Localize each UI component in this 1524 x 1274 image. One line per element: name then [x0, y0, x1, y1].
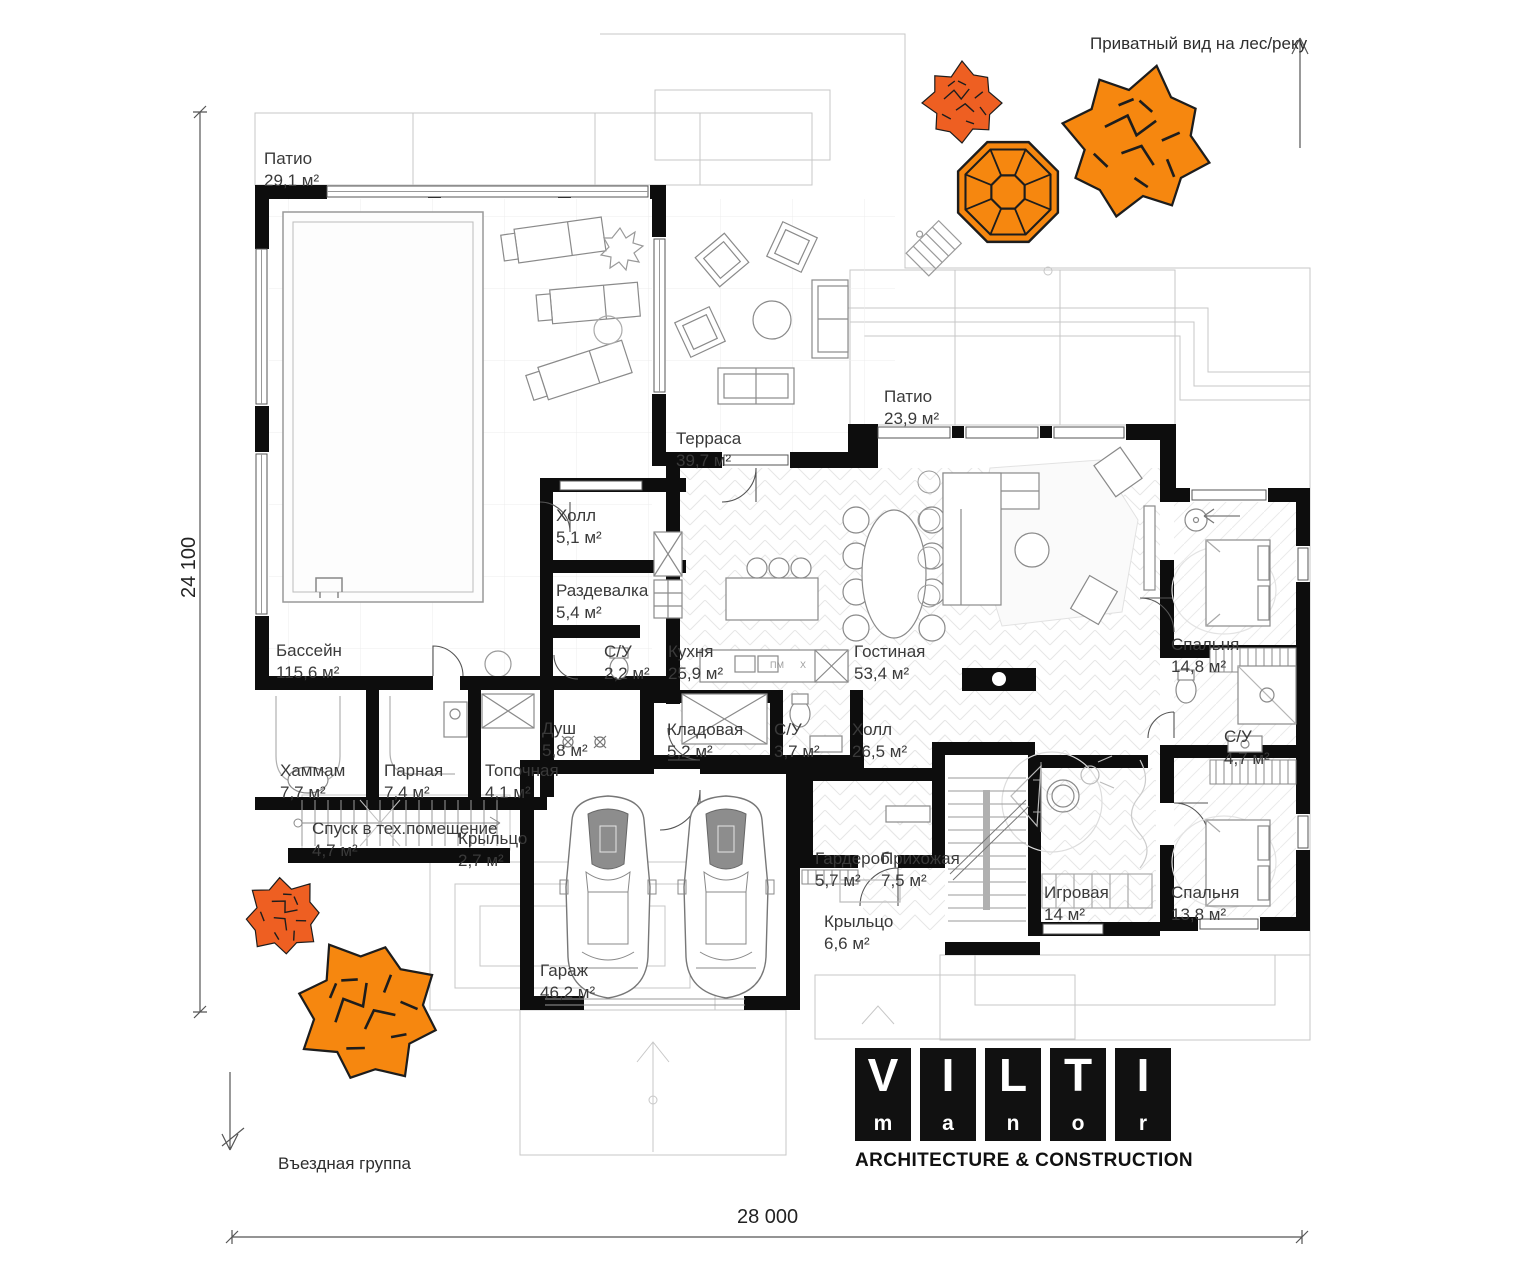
- room-label-porch-2: Крыльцо6,6 м²: [824, 911, 893, 956]
- logo-tile: Ir: [1115, 1048, 1171, 1141]
- logo-tagline: ARCHITECTURE & CONSTRUCTION: [855, 1150, 1173, 1172]
- room-label-entry-hall: Прихожая7,5 м²: [881, 848, 960, 893]
- room-label-changing: Раздевалка5,4 м²: [556, 580, 648, 625]
- entry-note: Въездная группа: [278, 1154, 411, 1174]
- room-label-playroom: Игровая14 м²: [1044, 882, 1109, 927]
- room-label-porch-1: Крыльцо2,7 м²: [458, 828, 527, 873]
- gazebo-steps-icon: [901, 216, 961, 276]
- dim-line-horizontal: [226, 1230, 1308, 1244]
- stairs-main: [948, 778, 1029, 921]
- room-label-hall-big: Холл26,5 м²: [852, 719, 907, 764]
- room-label-wc-2: С/У3,7 м²: [774, 719, 820, 764]
- room-label-bedroom-2: Спальня13,8 м²: [1171, 882, 1239, 927]
- room-label-boiler: Топочная4,1 м²: [485, 760, 559, 805]
- logo-tile: Ia: [920, 1048, 976, 1141]
- dim-width: 28 000: [737, 1206, 798, 1229]
- room-label-hall-small: Холл5,1 м²: [556, 505, 602, 550]
- appliance-label-hob: X: [800, 660, 806, 670]
- room-label-hammam: Хаммам7,7 м²: [280, 760, 345, 805]
- room-label-kitchen: Кухня25,9 м²: [668, 641, 723, 686]
- room-label-patio-1: Патио29,1 м²: [264, 148, 319, 193]
- room-label-wardrobe: Гардероб5,7 м²: [815, 848, 890, 893]
- logo-tiles: Vm Ia Ln To Ir: [855, 1048, 1173, 1141]
- logo-tile: To: [1050, 1048, 1106, 1141]
- room-label-steam: Парная7,4 м²: [384, 760, 443, 805]
- room-label-terrace: Терраса39,7 м²: [676, 428, 741, 473]
- gazebo-icon: [958, 142, 1058, 242]
- appliance-label-dishwasher: ПМ: [770, 660, 784, 670]
- company-logo: Vm Ia Ln To Ir ARCHITECTURE & CONSTRUCTI…: [855, 1048, 1173, 1172]
- entry-arrow-icon: [222, 1072, 244, 1150]
- room-label-storage: Кладовая5,2 м²: [667, 719, 743, 764]
- tree-icon: [922, 61, 1002, 143]
- dim-height: 24 100: [178, 537, 201, 598]
- floor-plan-canvas: Патио29,1 м² Терраса39,7 м² Патио23,9 м²…: [0, 0, 1524, 1274]
- fireplace-icon: [992, 672, 1006, 686]
- pool: [283, 212, 483, 602]
- logo-tile: Vm: [855, 1048, 911, 1141]
- room-label-wc-1: С/У2,2 м²: [604, 641, 650, 686]
- room-label-shower: Душ5,8 м²: [542, 718, 588, 763]
- room-label-patio-2: Патио23,9 м²: [884, 386, 939, 431]
- north-arrow-icon: [1292, 38, 1308, 148]
- floor-plan-drawing: [0, 0, 1524, 1274]
- tree-icon: [1043, 46, 1230, 236]
- room-label-bedroom-1: Спальня14,8 м²: [1171, 634, 1239, 679]
- room-label-living: Гостиная53,4 м²: [854, 641, 925, 686]
- view-note: Приватный вид на лес/реку: [1090, 34, 1307, 54]
- room-label-wc-3: С/У4,7 м²: [1224, 726, 1270, 771]
- tree-icon: [227, 858, 341, 972]
- car-icon: [678, 796, 774, 998]
- room-label-garage: Гараж46,2 м²: [540, 960, 595, 1005]
- room-label-pool: Бассейн115,6 м²: [276, 640, 342, 685]
- logo-tile: Ln: [985, 1048, 1041, 1141]
